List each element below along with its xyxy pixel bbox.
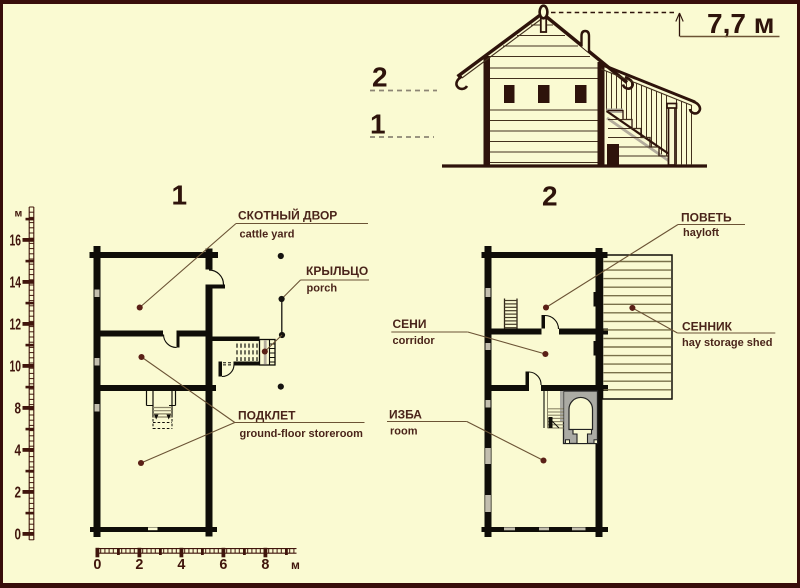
- svg-text:2: 2: [135, 556, 143, 573]
- svg-text:1: 1: [172, 180, 188, 211]
- svg-text:ground-floor storeroom: ground-floor storeroom: [240, 428, 364, 440]
- svg-text:cattle yard: cattle yard: [240, 229, 295, 241]
- svg-text:6: 6: [219, 556, 227, 573]
- svg-text:12: 12: [10, 317, 22, 334]
- svg-text:2: 2: [372, 62, 388, 93]
- svg-text:14: 14: [10, 275, 22, 292]
- svg-text:hayloft: hayloft: [683, 227, 719, 239]
- svg-text:hay storage shed: hay storage shed: [682, 337, 772, 349]
- svg-text:4: 4: [177, 556, 186, 573]
- svg-text:0: 0: [93, 556, 101, 573]
- svg-text:ПОВЕТЬ: ПОВЕТЬ: [681, 211, 732, 225]
- svg-text:1: 1: [370, 109, 386, 140]
- svg-text:СКОТНЫЙ ДВОР: СКОТНЫЙ ДВОР: [238, 208, 337, 223]
- svg-text:м: м: [291, 558, 300, 572]
- svg-text:м: м: [15, 208, 23, 220]
- svg-text:2: 2: [542, 181, 558, 212]
- svg-text:7,7 м: 7,7 м: [707, 8, 774, 39]
- svg-text:ПОДКЛЕТ: ПОДКЛЕТ: [238, 409, 296, 423]
- svg-text:ИЗБА: ИЗБА: [389, 408, 422, 422]
- svg-text:4: 4: [15, 443, 22, 460]
- svg-text:2: 2: [15, 485, 22, 502]
- svg-text:8: 8: [261, 556, 269, 573]
- svg-text:8: 8: [15, 401, 22, 418]
- svg-text:16: 16: [10, 233, 22, 250]
- svg-text:10: 10: [10, 359, 22, 376]
- svg-text:СЕННИК: СЕННИК: [682, 320, 733, 334]
- svg-text:СЕНИ: СЕНИ: [393, 317, 427, 331]
- svg-text:0: 0: [15, 527, 22, 544]
- svg-text:room: room: [390, 426, 418, 438]
- svg-text:КРЫЛЬЦО: КРЫЛЬЦО: [306, 264, 368, 278]
- svg-text:corridor: corridor: [393, 335, 436, 347]
- svg-text:porch: porch: [307, 283, 338, 295]
